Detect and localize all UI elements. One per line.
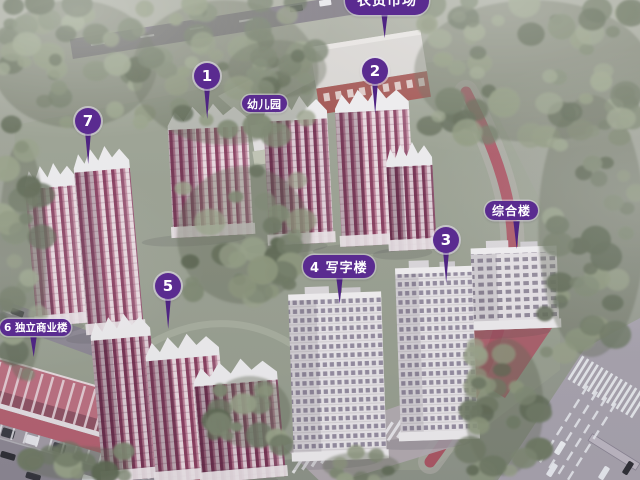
label-complex-building: 综合楼 — [485, 201, 538, 220]
aerial-rendering — [0, 0, 640, 480]
marker-number: 1 — [194, 63, 220, 89]
building-marker-1: 1 — [194, 63, 220, 89]
marker-number: 5 — [155, 273, 181, 299]
building-marker-7: 7 — [75, 108, 101, 134]
building-marker-2: 2 — [362, 58, 388, 84]
building-marker-3: 3 — [433, 227, 459, 253]
marker-number: 3 — [433, 227, 459, 253]
site-plan-photo: 1 2 3 5 7 农贸市场 幼儿园 综合楼 4 写字楼 6 独立商业楼 — [0, 0, 640, 480]
label-office-building: 4 写字楼 — [303, 255, 375, 278]
marker-number: 2 — [362, 58, 388, 84]
label-kindergarten: 幼儿园 — [242, 95, 287, 112]
marker-number: 7 — [75, 108, 101, 134]
label-farmers-market: 农贸市场 — [345, 0, 429, 15]
building-marker-5: 5 — [155, 273, 181, 299]
label-commercial-building: 6 独立商业楼 — [0, 319, 71, 336]
